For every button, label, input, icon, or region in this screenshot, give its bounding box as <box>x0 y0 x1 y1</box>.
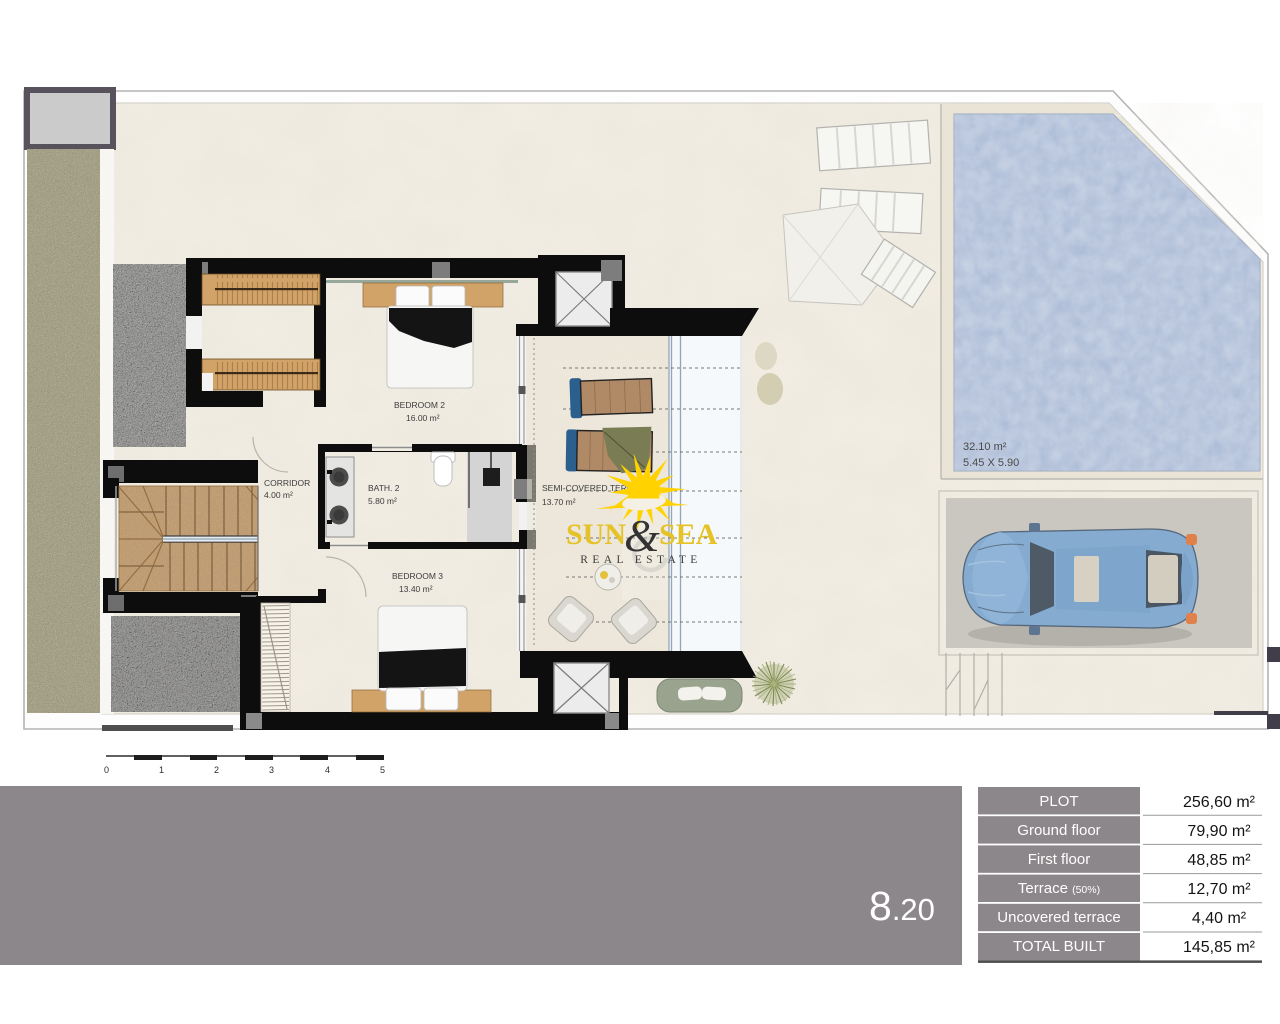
svg-text:5.80 m²: 5.80 m² <box>368 496 397 506</box>
svg-text:32.10 m²: 32.10 m² <box>963 441 1007 453</box>
svg-text:4,40 m²: 4,40 m² <box>1192 910 1247 927</box>
svg-text:5: 5 <box>380 765 385 775</box>
svg-text:16.00 m²: 16.00 m² <box>406 413 440 423</box>
svg-text:Ground floor: Ground floor <box>1017 822 1100 839</box>
svg-text:256,60 m²: 256,60 m² <box>1183 794 1256 811</box>
svg-text:TOTAL BUILT: TOTAL BUILT <box>1013 938 1105 955</box>
svg-text:PLOT: PLOT <box>1039 793 1078 810</box>
svg-text:CORRIDOR: CORRIDOR <box>264 478 310 488</box>
svg-text:145,85 m²: 145,85 m² <box>1183 939 1256 956</box>
svg-text:SEA: SEA <box>659 518 718 551</box>
svg-text:79,90 m²: 79,90 m² <box>1187 823 1251 840</box>
svg-text:5.45 X 5.90: 5.45 X 5.90 <box>963 457 1019 469</box>
svg-text:0: 0 <box>104 765 109 775</box>
svg-text:First floor: First floor <box>1028 851 1091 868</box>
svg-text:BATH. 2: BATH. 2 <box>368 483 400 493</box>
svg-text:BEDROOM 3: BEDROOM 3 <box>392 571 443 581</box>
svg-text:13.40 m²: 13.40 m² <box>399 584 433 594</box>
svg-text:12,70 m²: 12,70 m² <box>1187 881 1251 898</box>
svg-text:Uncovered terrace: Uncovered terrace <box>997 909 1120 926</box>
svg-text:REAL ESTATE: REAL ESTATE <box>580 554 701 566</box>
svg-text:BEDROOM 2: BEDROOM 2 <box>394 400 445 410</box>
svg-text:48,85 m²: 48,85 m² <box>1187 852 1251 869</box>
svg-text:2: 2 <box>214 765 219 775</box>
svg-text:SUN: SUN <box>566 518 626 551</box>
svg-text:13.70 m²: 13.70 m² <box>542 497 576 507</box>
svg-text:4: 4 <box>325 765 330 775</box>
svg-text:1: 1 <box>159 765 164 775</box>
svg-text:3: 3 <box>269 765 274 775</box>
svg-text:4.00 m²: 4.00 m² <box>264 490 293 500</box>
